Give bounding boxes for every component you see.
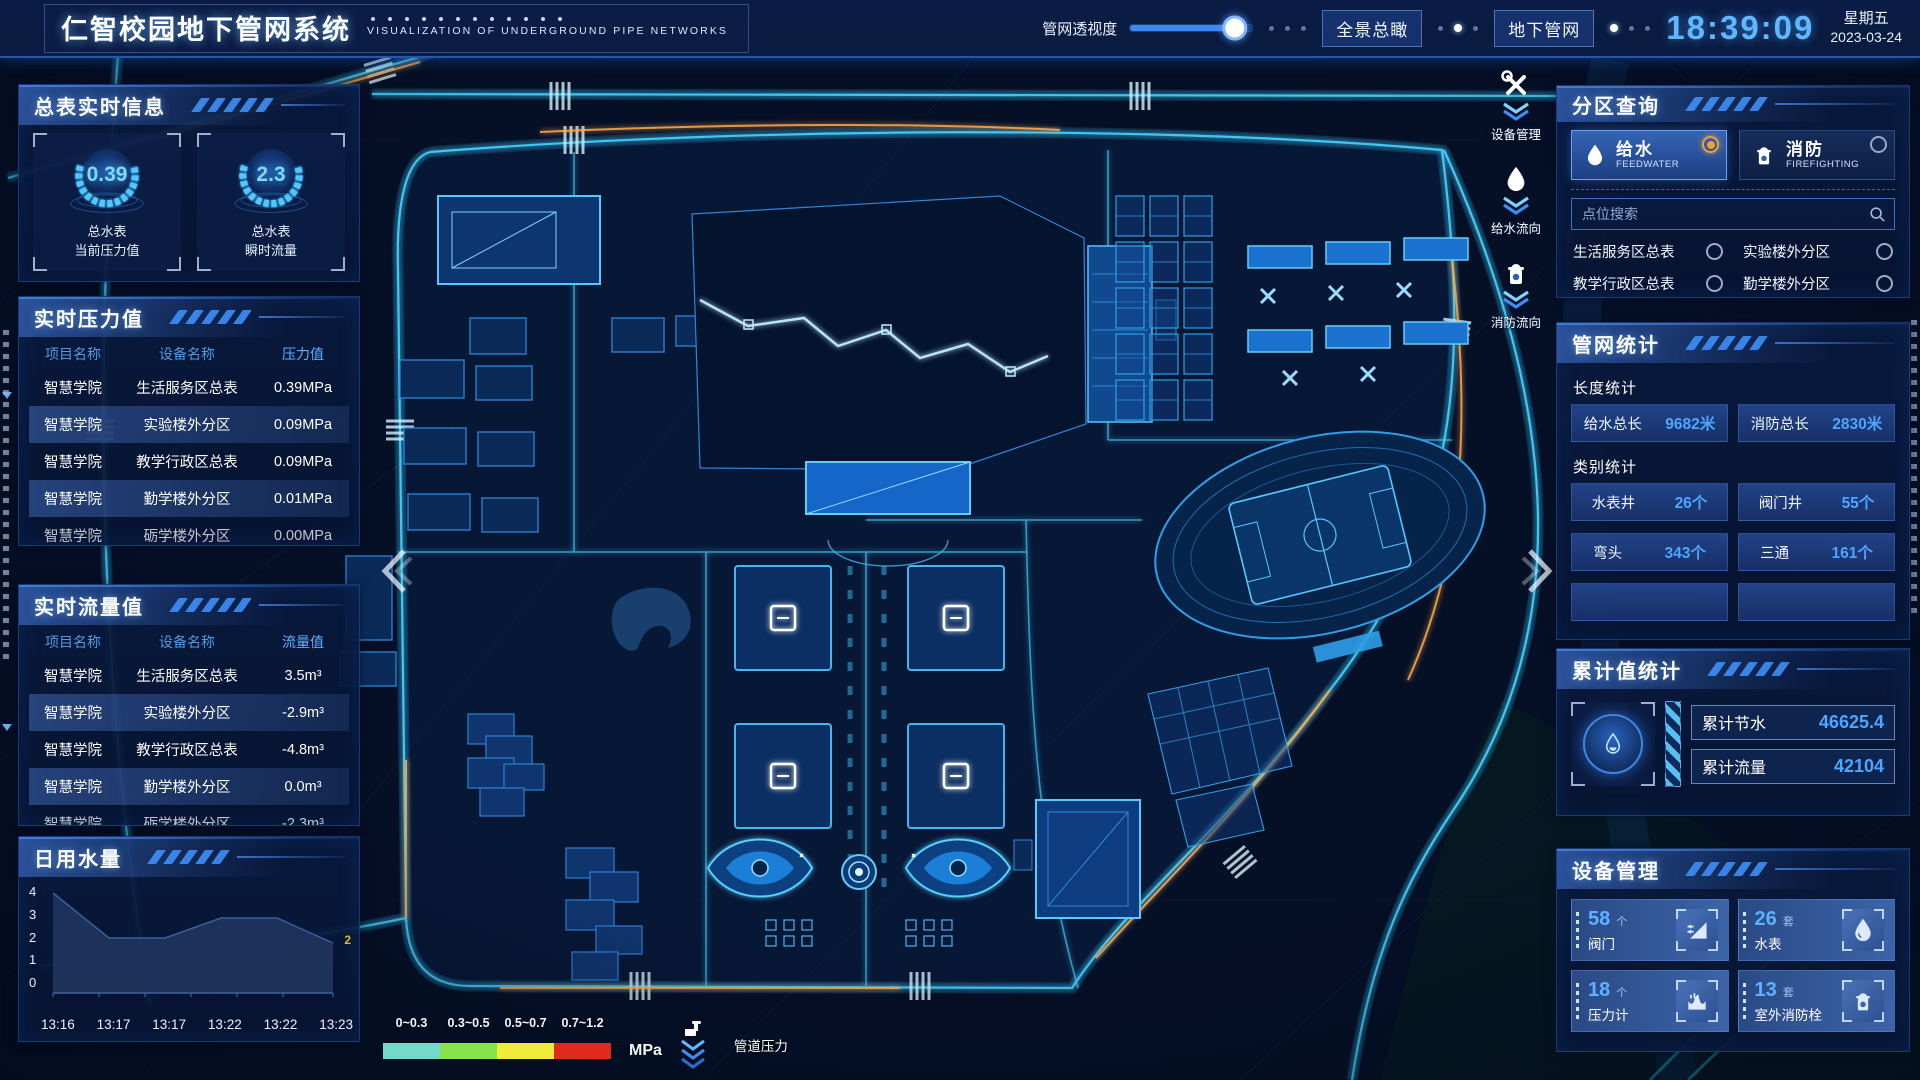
outdoor-hydrant-icon [1851, 988, 1875, 1014]
slash-decoration [196, 98, 269, 112]
panel-title: 实时压力值 [34, 303, 144, 332]
slash-decoration [152, 850, 225, 864]
valve-icon [1684, 917, 1710, 943]
meter-info-panel: 总表实时信息 0.39 总水表 当前压力值 [18, 84, 360, 282]
type-name: 给水 [1616, 140, 1679, 160]
accumulated-row: 累计流量42104 [1691, 749, 1895, 784]
legend-segment [440, 1043, 497, 1059]
panel-title: 实时流量值 [34, 591, 144, 620]
zone-radio[interactable] [1876, 243, 1893, 260]
transparency-slider-group: 管网透视度 [1042, 18, 1253, 39]
title-dots-decoration [367, 17, 728, 21]
panel-title: 分区查询 [1572, 90, 1660, 119]
app-title-box: 仁智校园地下管网系统 VISUALIZATION OF UNDERGROUND … [44, 4, 749, 53]
y-axis-labels: 43 21 0 [29, 885, 36, 989]
tools-icon [1499, 68, 1533, 100]
top-header: 仁智校园地下管网系统 VISUALIZATION OF UNDERGROUND … [0, 0, 1920, 58]
clock-weekday: 星期五 [1844, 10, 1889, 29]
x-axis-labels: 13:1613:17 13:1713:22 13:2213:23 [41, 1017, 353, 1032]
dots-decoration [1438, 24, 1478, 32]
underground-pipes-button[interactable]: 地下管网 [1494, 10, 1594, 47]
legend-range-labels: 0~0.3 0.3~0.5 0.5~0.7 0.7~1.2 [383, 1016, 611, 1030]
overview-button[interactable]: 全景总瞰 [1322, 10, 1422, 47]
table-header-row: 项目名称 设备名称 压力值 [29, 339, 349, 369]
zone-radio[interactable] [1706, 275, 1723, 292]
chevron-down-icon [680, 1039, 706, 1069]
pressure-gauge-card: 0.39 总水表 当前压力值 [33, 133, 181, 271]
stat-chip: 给水总长9682米 [1571, 404, 1728, 442]
clock-date: 2023-03-24 [1830, 29, 1902, 47]
zone-query-panel: 分区查询 给水 FEEDWATER 消防 [1556, 85, 1910, 298]
accumulated-stats-panel: 累计值统计 累计节水46625.4 累计流量42104 [1556, 648, 1910, 816]
slash-decoration [1690, 336, 1763, 350]
chevron-down-icon [1501, 196, 1531, 216]
table-row: 智慧学院生活服务区总表3.5m³ [29, 657, 349, 694]
pipe-pressure-icon [682, 1019, 704, 1039]
water-meter-device-card[interactable]: 26套 水表 [1738, 899, 1896, 961]
table-row: 智慧学院教学行政区总表0.09MPa [29, 443, 349, 480]
transparency-slider-label: 管网透视度 [1042, 18, 1117, 39]
rail-arrow [2, 392, 12, 399]
pressure-table-panel: 实时压力值 项目名称 设备名称 压力值 智慧学院生活服务区总表0.39MPa 智… [18, 296, 360, 546]
stat-chip: 三通161个 [1738, 533, 1895, 571]
table-row: 智慧学院生活服务区总表0.39MPa [29, 369, 349, 406]
table-row: 智慧学院实验楼外分区0.09MPa [29, 406, 349, 443]
legend-unit: MPa [629, 1042, 662, 1060]
left-edge-rail [3, 330, 9, 660]
flow-table: 项目名称 设备名称 流量值 智慧学院生活服务区总表3.5m³ 智慧学院实验楼外分… [19, 625, 359, 826]
stat-chip: 阀门井55个 [1738, 483, 1895, 521]
feedwater-radio[interactable] [1702, 136, 1719, 153]
type-subtitle: FIREFIGHTING [1786, 159, 1859, 170]
daily-usage-panel: 日用水量 43 21 0 2 13:1613:17 13:1713:22 13:… [18, 836, 360, 1042]
water-drop-icon [1584, 142, 1606, 168]
panel-title: 总表实时信息 [34, 91, 166, 120]
legend-label: 管道压力 [734, 1035, 788, 1055]
rail-arrow [2, 724, 12, 731]
table-header-row: 项目名称 设备名称 流量值 [29, 627, 349, 657]
legend-color-bar [383, 1043, 611, 1059]
slash-decoration [1690, 862, 1763, 876]
hydrant-icon [1502, 258, 1530, 288]
firefighting-type-button[interactable]: 消防 FIREFIGHTING [1739, 130, 1895, 180]
map-tool-fire-flow[interactable]: 消防流向 [1484, 258, 1548, 331]
map-tool-device-manage[interactable]: 设备管理 [1484, 68, 1548, 143]
point-search-input[interactable] [1580, 205, 1868, 223]
gauge-name: 总水表 [197, 223, 345, 242]
carousel-right-arrow[interactable] [1520, 546, 1558, 601]
chart-end-value-label: 2 [344, 933, 351, 947]
map-tool-feedwater-flow[interactable]: 给水流向 [1484, 164, 1548, 237]
slash-decoration [1690, 97, 1763, 111]
table-row: 智慧学院勤学楼外分区0.0m³ [29, 768, 349, 805]
accumulated-row: 累计节水46625.4 [1691, 705, 1895, 740]
gauge-value: 2.3 [197, 163, 345, 187]
dots-decoration [1610, 24, 1650, 32]
slash-decoration [1712, 662, 1785, 676]
carousel-left-arrow[interactable] [376, 546, 414, 601]
zone-radio[interactable] [1706, 243, 1723, 260]
gauge-metric: 瞬时流量 [197, 242, 345, 261]
stat-chip-partial [1571, 583, 1728, 621]
chevron-down-icon [1501, 102, 1531, 122]
app-root: 仁智校园地下管网系统 VISUALIZATION OF UNDERGROUND … [0, 0, 1920, 1080]
water-drop-icon [1602, 730, 1624, 756]
gauge-name: 总水表 [33, 223, 181, 242]
chevron-down-icon [1501, 290, 1531, 310]
pressure-gauge-icon [1684, 988, 1710, 1014]
area-chart [43, 881, 343, 1013]
right-edge-rail [1911, 320, 1917, 620]
dots-decoration [1269, 26, 1306, 31]
pressure-table: 项目名称 设备名称 压力值 智慧学院生活服务区总表0.39MPa 智慧学院实验楼… [19, 337, 359, 546]
app-title: 仁智校园地下管网系统 [61, 8, 351, 47]
feedwater-type-button[interactable]: 给水 FEEDWATER [1571, 130, 1727, 180]
point-search-box [1571, 198, 1895, 230]
slider-handle[interactable] [1223, 16, 1248, 41]
zone-list: 生活服务区总表 实验楼外分区 教学行政区总表 勤学楼外分区 砺学楼外分区 宿舍区… [1557, 230, 1909, 298]
natatorium-building [438, 196, 600, 284]
clock-time: 18:39:09 [1666, 9, 1814, 47]
transparency-slider[interactable] [1129, 24, 1253, 32]
panel-title: 设备管理 [1572, 855, 1660, 884]
stat-chip: 水表井26个 [1571, 483, 1728, 521]
type-name: 消防 [1786, 140, 1859, 160]
stat-chip-partial [1738, 583, 1895, 621]
outdoor-hydrant-device-card[interactable]: 13套 室外消防栓 [1738, 970, 1896, 1032]
type-subtitle: FEEDWATER [1616, 159, 1679, 170]
pressure-legend: 0~0.3 0.3~0.5 0.5~0.7 0.7~1.2 MPa [383, 1016, 788, 1069]
stat-chip: 弯头343个 [1571, 533, 1728, 571]
fountain [842, 855, 876, 889]
stat-chip: 消防总长2830米 [1738, 404, 1895, 442]
dashed-divider [1571, 189, 1895, 190]
water-meter-icon [1851, 917, 1875, 943]
gauge-metric: 当前压力值 [33, 242, 181, 261]
legend-segment [497, 1043, 554, 1059]
panel-title: 日用水量 [34, 843, 122, 872]
legend-segment [554, 1043, 611, 1059]
slider-fill [1130, 25, 1236, 31]
table-row: 智慧学院教学行政区总表-4.8m³ [29, 731, 349, 768]
length-stats-label: 长度统计 [1557, 363, 1909, 404]
firefighting-radio[interactable] [1870, 136, 1887, 153]
flow-gauge-card: 2.3 总水表 瞬时流量 [197, 133, 345, 271]
slash-decoration [174, 310, 247, 324]
valve-device-card[interactable]: 58个 阀门 [1571, 899, 1729, 961]
water-drop-icon [1503, 164, 1529, 194]
hydrant-icon [1752, 142, 1776, 168]
table-row: 智慧学院砺学楼外分区-2.3m³ [29, 805, 349, 826]
app-subtitle: VISUALIZATION OF UNDERGROUND PIPE NETWOR… [367, 25, 728, 37]
panel-title: 累计值统计 [1572, 655, 1682, 684]
gauge-value: 0.39 [33, 163, 181, 187]
table-row: 智慧学院勤学楼外分区0.01MPa [29, 480, 349, 517]
zone-list-item[interactable]: 勤学楼外分区 [1743, 271, 1893, 296]
hazard-stripes-decoration [1665, 701, 1681, 787]
table-row: 智慧学院砺学楼外分区0.00MPa [29, 517, 349, 546]
daily-usage-chart: 43 21 0 2 [27, 881, 351, 1017]
flow-table-panel: 实时流量值 项目名称 设备名称 流量值 智慧学院生活服务区总表3.5m³ 智慧学… [18, 584, 360, 826]
table-row: 智慧学院实验楼外分区-2.9m³ [29, 694, 349, 731]
category-stats-label: 类别统计 [1557, 442, 1909, 483]
search-icon[interactable] [1868, 205, 1886, 223]
zone-list-item[interactable]: 实验楼外分区 [1743, 239, 1893, 264]
pressure-gauge-device-card[interactable]: 18个 压力计 [1571, 970, 1729, 1032]
water-saving-icon-box [1571, 702, 1655, 786]
zone-radio[interactable] [1876, 275, 1893, 292]
zone-list-item[interactable]: 教学行政区总表 [1573, 271, 1723, 296]
panel-title: 管网统计 [1572, 329, 1660, 358]
legend-segment [383, 1043, 440, 1059]
device-management-panel: 设备管理 58个 阀门 26套 [1556, 848, 1910, 1052]
zone-list-item[interactable]: 生活服务区总表 [1573, 239, 1723, 264]
pipe-stats-panel: 管网统计 长度统计 给水总长9682米 消防总长2830米 类别统计 水表井26… [1556, 322, 1910, 640]
slash-decoration [174, 598, 247, 612]
basketball-courts [1116, 196, 1212, 420]
